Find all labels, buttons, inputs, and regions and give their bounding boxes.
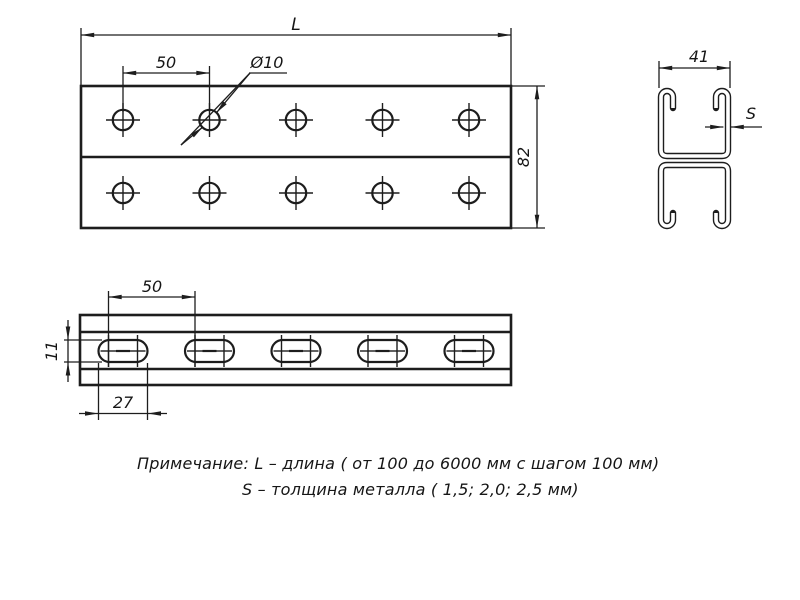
dim-hole-label: Ø10 <box>250 53 284 72</box>
notes: Примечание: L – длина ( от 100 до 6000 м… <box>137 454 659 499</box>
drawing-canvas: L 50 Ø10 82 <box>0 0 800 600</box>
upper-channel-sheet <box>661 91 728 156</box>
note-line-1: Примечание: L – длина ( от 100 до 6000 м… <box>137 454 659 473</box>
note-line-2: S – толщина металла ( 1,5; 2,0; 2,5 мм) <box>242 480 579 499</box>
dim-hole-diameter: Ø10 <box>181 53 287 145</box>
hole-marker <box>452 176 486 210</box>
lower-channel-sheet <box>661 165 728 226</box>
top-view: L 50 Ø10 82 <box>81 15 545 228</box>
slot-marker <box>358 335 407 367</box>
drawing-sheet: L 50 Ø10 82 <box>0 0 800 600</box>
dim-pitch-label: 50 <box>142 277 162 296</box>
dim-slot-width-label: 11 <box>42 341 61 361</box>
dim-width-label: 41 <box>689 47 709 66</box>
leader-line <box>181 73 250 145</box>
arrowhead <box>216 73 250 113</box>
slot-marker <box>272 335 321 367</box>
dim-length-label: L <box>291 15 300 35</box>
dim-pitch-side: 50 <box>109 277 196 297</box>
dim-slot-length: 27 <box>79 363 167 420</box>
side-view-slots <box>99 335 494 367</box>
slot-marker <box>99 335 148 367</box>
dim-pitch-label: 50 <box>156 53 176 72</box>
hole-marker <box>279 176 313 210</box>
arrowhead <box>181 127 203 145</box>
dim-pitch-top: 50 <box>123 53 210 112</box>
dim-width: 41 <box>659 47 730 88</box>
hole-marker <box>366 103 400 137</box>
hole-marker <box>106 176 140 210</box>
dim-height-label: 82 <box>514 147 533 167</box>
section-view: 41 S <box>659 47 762 226</box>
hole-marker <box>366 176 400 210</box>
slot-marker <box>185 335 234 367</box>
hole-marker <box>279 103 313 137</box>
dim-slot-length-label: 27 <box>113 393 134 412</box>
hole-marker <box>452 103 486 137</box>
slot-marker <box>445 335 494 367</box>
dim-length: L <box>81 15 511 86</box>
dim-height: 82 <box>511 86 545 228</box>
side-view: 50 27 11 <box>42 277 511 420</box>
dim-thickness-label: S <box>746 104 756 123</box>
hole-marker <box>193 176 227 210</box>
dim-slot-width: 11 <box>42 320 102 382</box>
